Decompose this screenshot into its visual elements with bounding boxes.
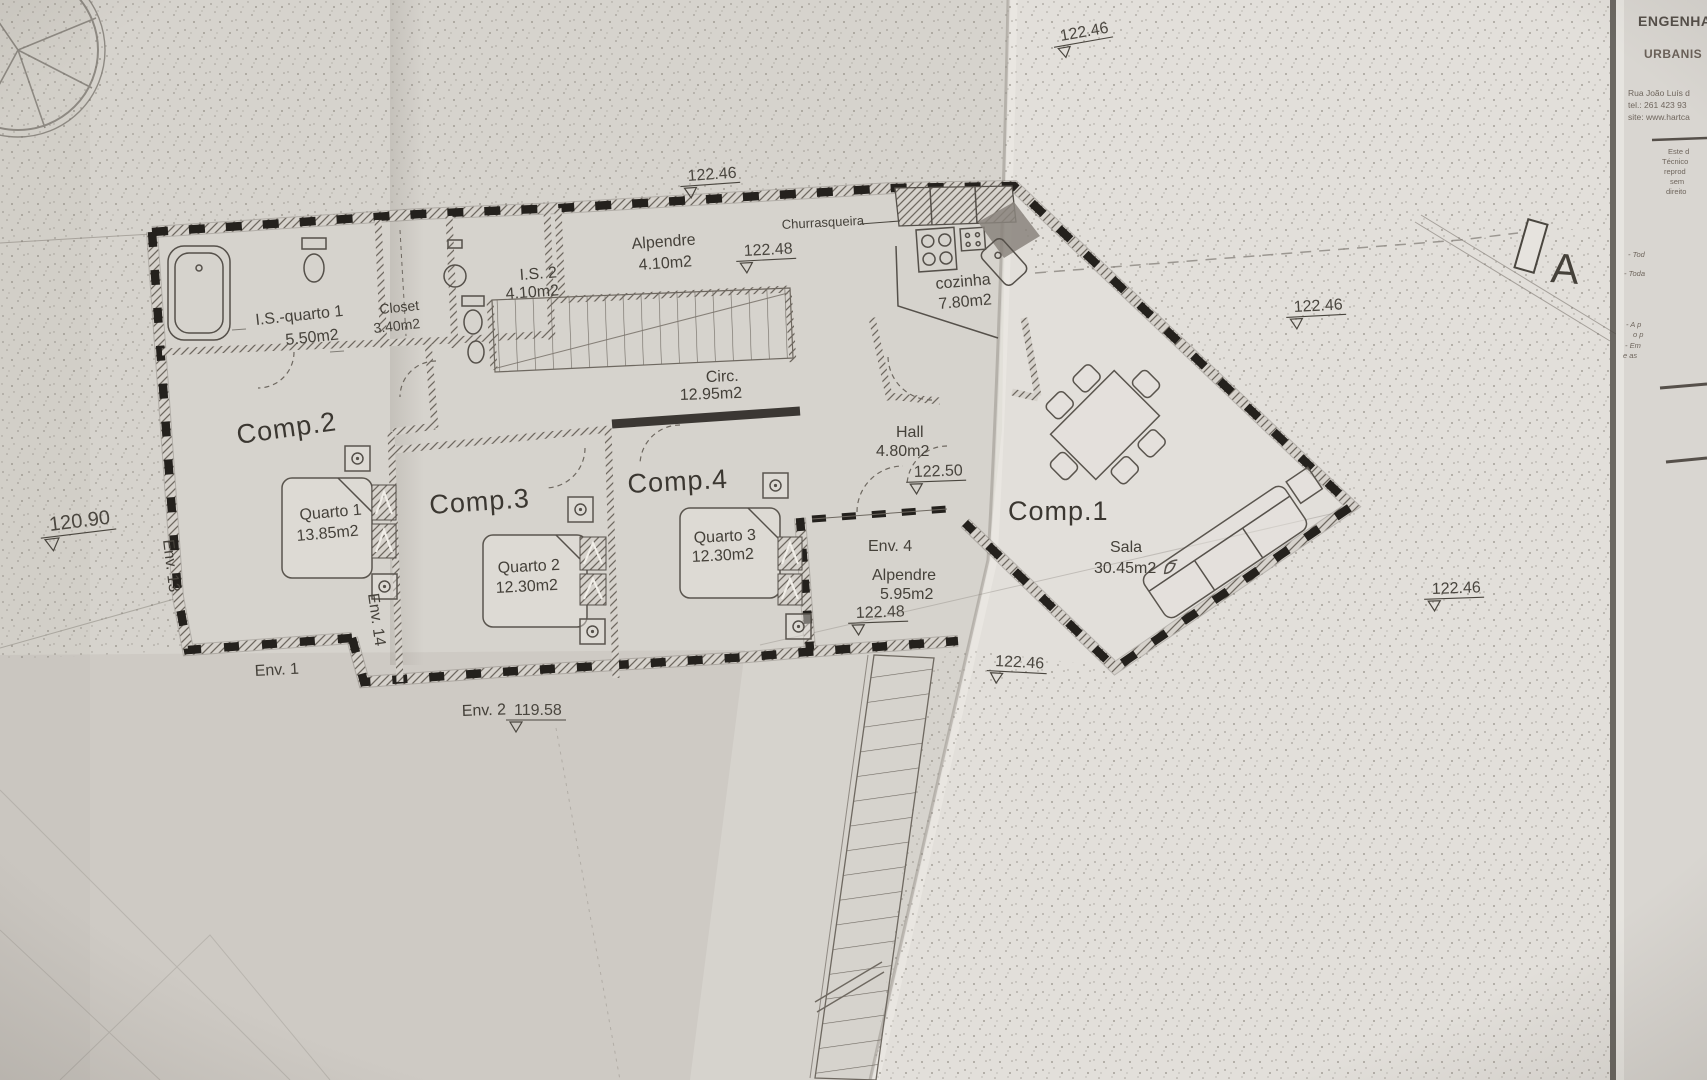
photo-vignette xyxy=(0,0,1707,1080)
photographed-floor-plan: Alpendre 4.10m2 Churrasqueira I.S.-quart… xyxy=(0,0,1707,1080)
floor-plan-svg: Alpendre 4.10m2 Churrasqueira I.S.-quart… xyxy=(0,0,1707,1080)
